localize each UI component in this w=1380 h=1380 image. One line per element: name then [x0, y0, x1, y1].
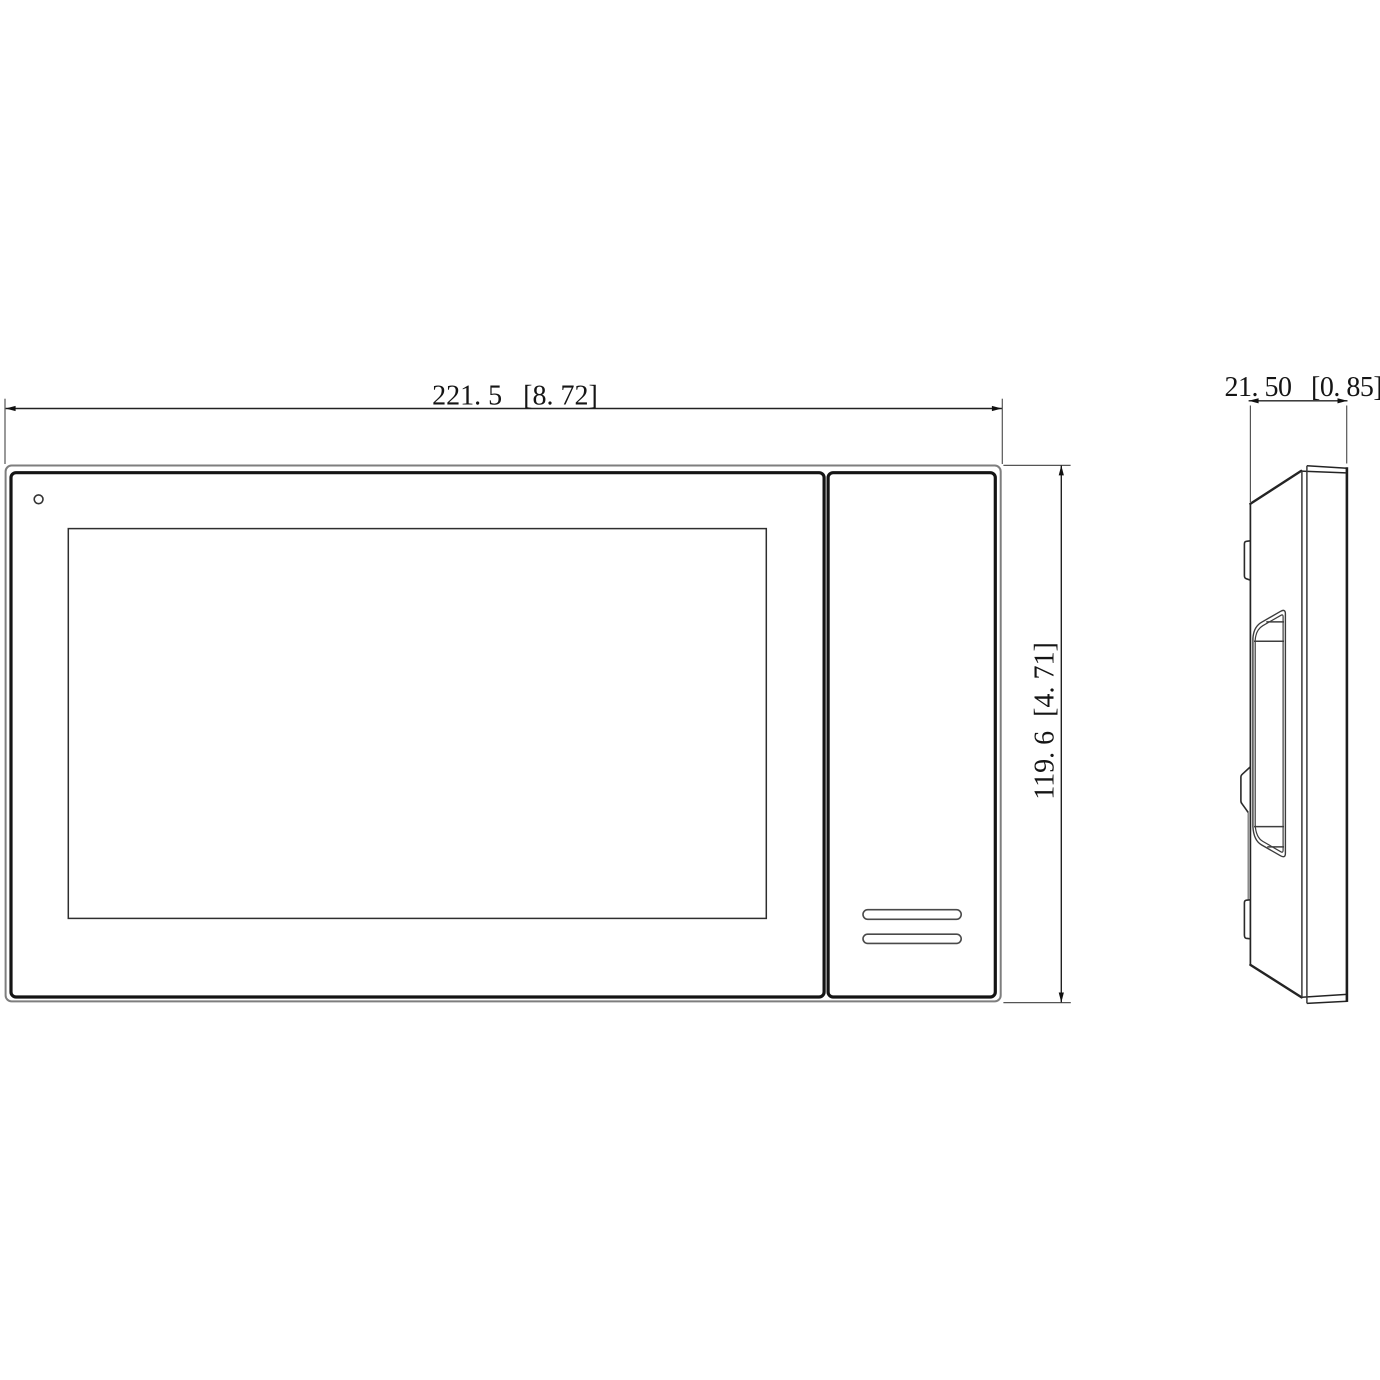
svg-text:221. 5 [8. 72]: 221. 5 [8. 72]: [432, 381, 598, 412]
svg-text:21. 50 [0. 85]: 21. 50 [0. 85]: [1225, 372, 1380, 403]
svg-text:119. 6 [4. 71]: 119. 6 [4. 71]: [1030, 642, 1061, 800]
